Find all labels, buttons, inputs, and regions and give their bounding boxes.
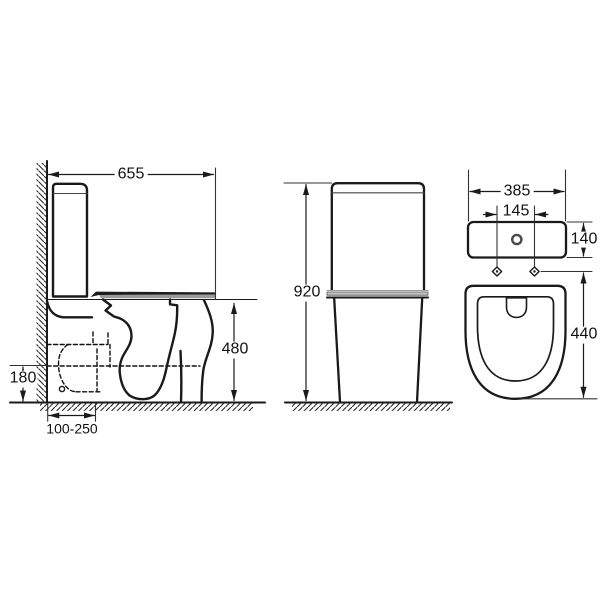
fixing-bolt-right <box>530 267 539 276</box>
dim-label-cistern-height: 140 <box>570 231 599 248</box>
floor-hatching-back <box>292 403 450 411</box>
dim-label-outlet-height: 180 <box>9 371 38 388</box>
seat-shading-side <box>99 295 216 299</box>
base-right-edge <box>417 299 422 402</box>
dim-label-pan-height: 440 <box>570 327 599 344</box>
toilet-dimension-drawing: 655 480 180 100-250 920 385 145 140 440 <box>0 0 600 600</box>
floor-hatching <box>40 403 253 411</box>
front-view-drawing <box>466 170 598 399</box>
base-left-edge <box>334 299 340 402</box>
hidden-trap-dashed-outline <box>47 332 200 392</box>
bowl-side-profile <box>47 300 213 403</box>
wall-hatching <box>37 163 48 402</box>
dim-label-fixing-centres: 145 <box>502 204 531 221</box>
side-view-drawing <box>10 161 265 424</box>
cistern-side-profile <box>53 184 87 297</box>
cistern-back-outline <box>332 183 424 290</box>
fixing-hole-detail <box>59 386 64 391</box>
dim-label-overall-width: 385 <box>501 183 534 200</box>
dim-label-seat-height: 480 <box>219 342 252 359</box>
dim-label-overall-height: 920 <box>291 285 324 302</box>
dim-label-outlet-setout: 100-250 <box>43 422 100 437</box>
seat-shading-back <box>327 292 428 295</box>
fixing-bolt-left <box>492 267 501 276</box>
dim-label-overall-depth: 655 <box>115 166 148 183</box>
cistern-front-outline <box>468 222 566 258</box>
